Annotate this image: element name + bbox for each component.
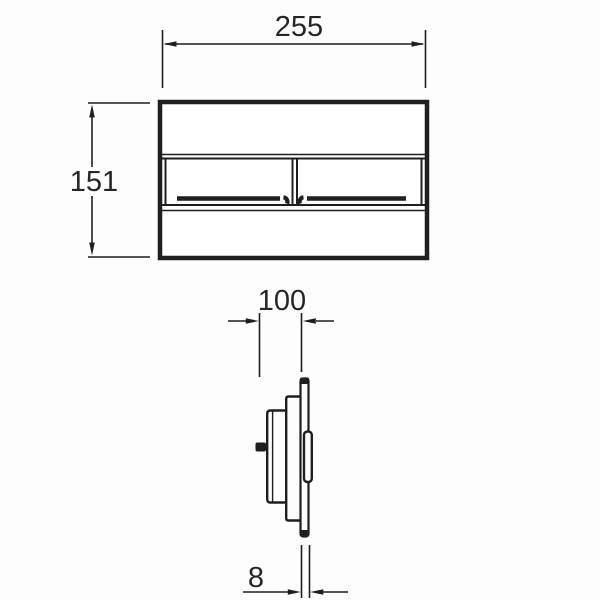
- frame-step-outline: [286, 397, 300, 521]
- arrowhead-down-icon: [89, 243, 95, 256]
- front-view: 255 151: [70, 11, 427, 258]
- arrowhead-up-icon: [89, 105, 95, 118]
- dimension-label-height: 151: [70, 166, 118, 198]
- plate-side-profile: [256, 378, 312, 537]
- frame-body-outline: [267, 411, 286, 503]
- drawing-canvas: 255 151: [0, 0, 600, 600]
- flush-plate-technical-drawing: 255 151: [0, 0, 600, 600]
- arrowhead-left-icon: [164, 41, 177, 47]
- button-profile: [304, 432, 312, 483]
- dimension-plate-thickness: 8: [243, 545, 348, 598]
- side-view: 100 8: [228, 285, 348, 598]
- plate-edge-bottom-cap: [300, 530, 309, 537]
- plate-front-face: [160, 102, 427, 258]
- arrowhead-left-icon: [303, 318, 316, 324]
- dimension-side-depth: 100: [228, 285, 334, 377]
- dimension-label-depth: 100: [258, 285, 306, 317]
- arrowhead-right-icon: [412, 41, 425, 47]
- clip-bump: [256, 443, 267, 452]
- dimension-front-width: 255: [163, 11, 426, 88]
- arrowhead-left-icon: [310, 589, 323, 595]
- arrowhead-right-icon: [246, 318, 259, 324]
- dimension-label-width: 255: [275, 11, 323, 43]
- arrowhead-right-icon: [288, 589, 301, 595]
- dimension-front-height: 151: [70, 103, 150, 257]
- plate-edge-top-cap: [300, 378, 309, 385]
- dimension-label-thickness: 8: [248, 562, 264, 594]
